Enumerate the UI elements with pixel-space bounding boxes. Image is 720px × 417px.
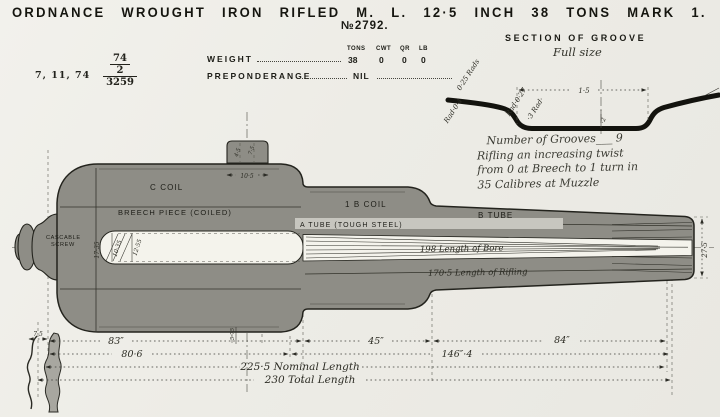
label-cascable-2: SCREW (51, 242, 75, 248)
cascable-detail (27, 333, 61, 412)
groove-rad-4: ·3 Rad· (525, 96, 545, 122)
weight-label: WEIGHT (207, 54, 253, 64)
groove-width-dim: 1·5 (578, 87, 590, 95)
dim-83: 83″ (108, 336, 124, 347)
dim-total-length: 230 Total Length (264, 374, 356, 386)
dim-45: 45″ (367, 336, 384, 347)
leader-dots (257, 60, 341, 62)
weight-tons: 38 (348, 55, 357, 65)
weight-cwt: 0 (379, 55, 384, 65)
registry-fraction: 74 2 3259 (100, 53, 140, 88)
serial-number: №2792. (341, 20, 389, 32)
label-a-tube: A TUBE (TOUGH STEEL) (300, 222, 403, 229)
dim-chamber-1: 17·35 (94, 241, 101, 258)
dim-84: 84″ (554, 335, 570, 346)
col-cwt: CWT (376, 46, 391, 52)
col-tons: TONS (347, 46, 366, 52)
col-qr: QR (400, 46, 410, 52)
dim-7-5: 7·5 (33, 331, 43, 338)
label-c-coil: C COIL (150, 183, 183, 192)
groove-depth-dim: ·2 (599, 117, 607, 125)
fraction-mid: 2 (103, 65, 137, 77)
rifling-note: Number of Grooves___ 9 Rifling an increa… (476, 130, 712, 193)
label-bore-length: 198 Length of Bore (420, 244, 504, 255)
label-b-tube: B TUBE (478, 211, 513, 220)
dim-vent-width: 10·5 (240, 173, 254, 180)
weight-lb: 0 (421, 55, 426, 65)
fraction-bottom: 3259 (106, 77, 134, 88)
powder-chamber (100, 231, 303, 264)
groove-rad-3: Rad·0·27 (504, 86, 529, 118)
dim-146-4: 146″·4 (442, 349, 473, 360)
leader-dots (377, 77, 452, 79)
dim-muzzle-diameter: 27·5 (701, 242, 709, 259)
label-rifling-length: 170·5 Length of Rifling (428, 267, 528, 279)
drawing-sheet: C COIL BREECH PIECE (COILED) 1 B COIL A … (0, 0, 720, 417)
groove-section-subtitle: Full size (553, 45, 602, 59)
dim-nominal-length: 225·5 Nominal Length (239, 361, 360, 373)
preponderance-value: NIL (353, 71, 370, 81)
date-stamp: 7, 11, 74 (35, 70, 90, 81)
dim-80-6: 80·6 (121, 349, 142, 360)
weight-table: TONS CWT QR LB WEIGHT 38 0 0 0 PREPONDER… (197, 46, 467, 86)
label-breech-piece: BREECH PIECE (COILED) (118, 208, 232, 217)
leader-dots (302, 77, 347, 79)
groove-section-title: SECTION OF GROOVE (505, 33, 646, 43)
weight-qr: 0 (402, 55, 407, 65)
dim-mid-small: 5·75 (230, 327, 236, 340)
label-cascable-1: CASCABLE (46, 235, 81, 241)
drawing-title: ORDNANCE WROUGHT IRON RIFLED M. L. 12·5 … (12, 4, 716, 20)
col-lb: LB (419, 46, 428, 52)
preponderance-label: PREPONDERANGE (207, 71, 311, 81)
label-1b-coil: 1 B COIL (345, 200, 387, 209)
fraction-top: 74 (110, 53, 130, 65)
